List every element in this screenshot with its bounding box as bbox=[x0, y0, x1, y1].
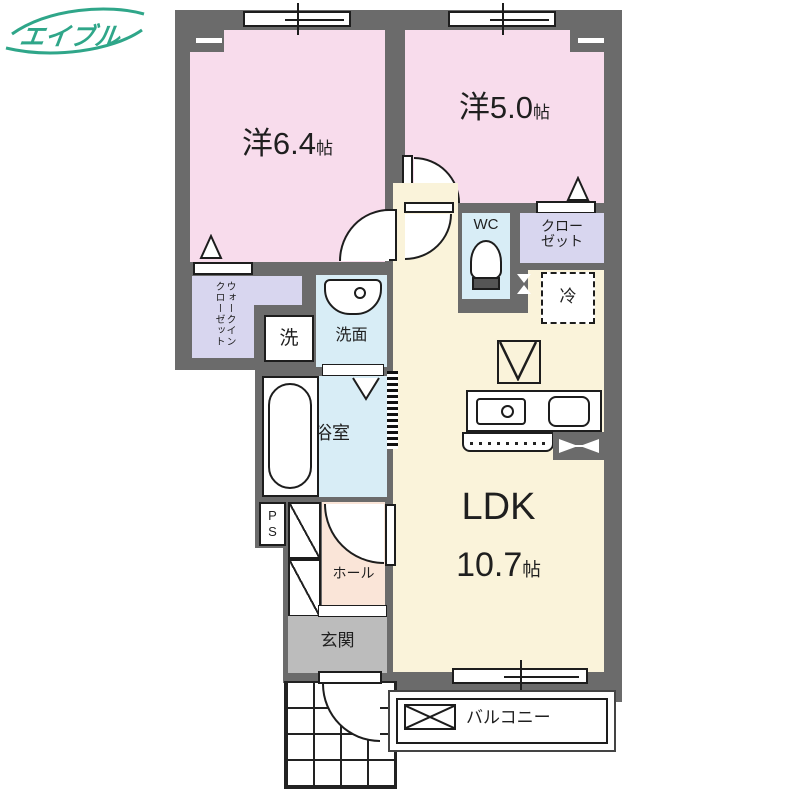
bedroom-5-0-label: 洋5.0帖 bbox=[405, 92, 604, 125]
agency-logo: エイブル bbox=[4, 4, 154, 62]
pipe-space-label: PS bbox=[266, 508, 279, 539]
wall-triangle-marker bbox=[199, 234, 223, 260]
vent-bowtie-icon bbox=[558, 438, 600, 454]
vent-mark bbox=[578, 38, 604, 43]
washroom-label: 洗面 bbox=[316, 328, 387, 345]
logo-text: エイブル bbox=[17, 17, 122, 53]
bedroom-6-4-window-icon bbox=[243, 11, 351, 27]
stove-icon bbox=[548, 396, 590, 427]
bedroom-5-0-window-icon bbox=[448, 11, 556, 27]
ldk-label: LDK bbox=[393, 488, 604, 528]
wc-label: WC bbox=[462, 217, 510, 233]
washroom-door-track bbox=[387, 371, 398, 449]
folding-door-icon bbox=[352, 377, 380, 401]
ldk-size-label: 10.7帖 bbox=[393, 548, 604, 584]
kitchen-sink-icon bbox=[476, 398, 526, 425]
balcony-hatch-icon bbox=[404, 704, 456, 730]
balcony: バルコニー bbox=[388, 690, 616, 752]
washer-label: 洗 bbox=[266, 329, 312, 349]
fridge-space: 冷 bbox=[541, 272, 595, 324]
entrance: 玄関 bbox=[288, 616, 387, 673]
balcony-label: バルコニー bbox=[466, 709, 551, 727]
bathroom-label: 浴室 bbox=[314, 424, 350, 443]
bathroom-sill bbox=[322, 364, 384, 376]
vent-mark bbox=[196, 38, 222, 43]
ldk-window-icon bbox=[452, 668, 588, 684]
fridge-label: 冷 bbox=[543, 288, 593, 306]
shoe-cabinet-lower bbox=[288, 559, 321, 617]
front-door-leaf bbox=[318, 671, 382, 684]
wall-triangle-marker bbox=[566, 176, 590, 202]
wc-door-leaf bbox=[404, 202, 454, 213]
bathtub-icon bbox=[262, 376, 319, 497]
bedroom-6-4-label: 洋6.4帖 bbox=[190, 128, 385, 161]
wall-trim-cover bbox=[255, 548, 283, 683]
range-symbol bbox=[497, 340, 541, 384]
floorplan-page: { "colors": { "wall": "#6b6b6b", "bedroo… bbox=[0, 0, 800, 800]
counter-ledge bbox=[462, 432, 554, 452]
wic-sliding-door-icon bbox=[193, 262, 253, 275]
closet: クロー ゼット bbox=[520, 213, 604, 263]
washer-space: 洗 bbox=[264, 315, 314, 362]
hall-label: ホール bbox=[322, 566, 385, 581]
toilet-icon bbox=[470, 240, 502, 294]
walk-in-closet-label: ウォークイン クローゼット bbox=[196, 281, 252, 355]
hall-door-leaf bbox=[385, 504, 396, 566]
shoe-cabinet-upper bbox=[288, 502, 321, 559]
entrance-label: 玄関 bbox=[288, 632, 387, 650]
pipe-space: PS bbox=[259, 502, 286, 546]
vent-hourglass-icon bbox=[516, 273, 532, 295]
kitchen-counter bbox=[466, 390, 602, 432]
closet-label: クロー ゼット bbox=[520, 219, 604, 248]
entrance-step bbox=[318, 605, 387, 617]
